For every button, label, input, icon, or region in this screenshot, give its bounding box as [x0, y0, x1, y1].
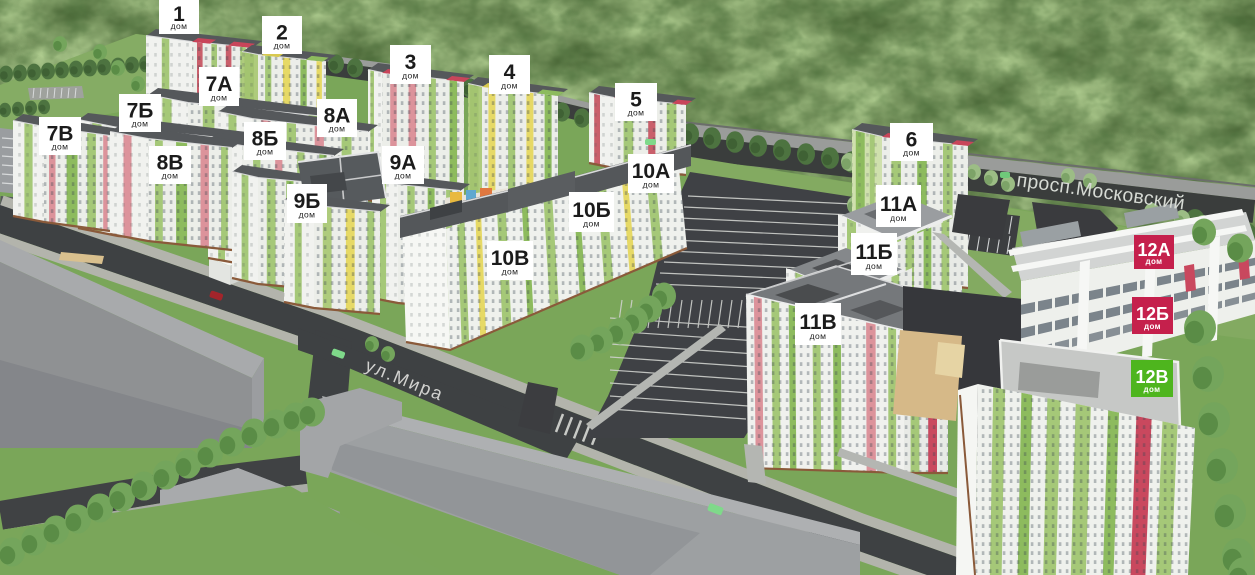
svg-text:дом: дом [583, 218, 600, 228]
svg-text:дом: дом [329, 124, 346, 134]
svg-text:дом: дом [274, 41, 291, 51]
svg-text:дом: дом [52, 142, 69, 152]
svg-text:дом: дом [402, 71, 419, 81]
svg-text:дом: дом [1144, 385, 1161, 394]
svg-text:дом: дом [643, 180, 660, 190]
svg-text:дом: дом [502, 267, 519, 277]
svg-text:дом: дом [628, 108, 645, 118]
svg-text:дом: дом [395, 171, 412, 181]
svg-text:дом: дом [810, 331, 827, 341]
svg-text:дом: дом [132, 119, 149, 129]
svg-text:дом: дом [211, 93, 228, 103]
svg-text:дом: дом [171, 21, 188, 31]
svg-text:дом: дом [890, 213, 907, 223]
svg-text:дом: дом [1146, 257, 1163, 266]
svg-text:дом: дом [866, 261, 883, 271]
svg-text:дом: дом [162, 171, 179, 181]
svg-text:дом: дом [903, 148, 920, 158]
svg-text:дом: дом [299, 210, 316, 220]
svg-text:дом: дом [501, 81, 518, 91]
svg-text:дом: дом [257, 147, 274, 157]
svg-text:дом: дом [1144, 322, 1161, 331]
